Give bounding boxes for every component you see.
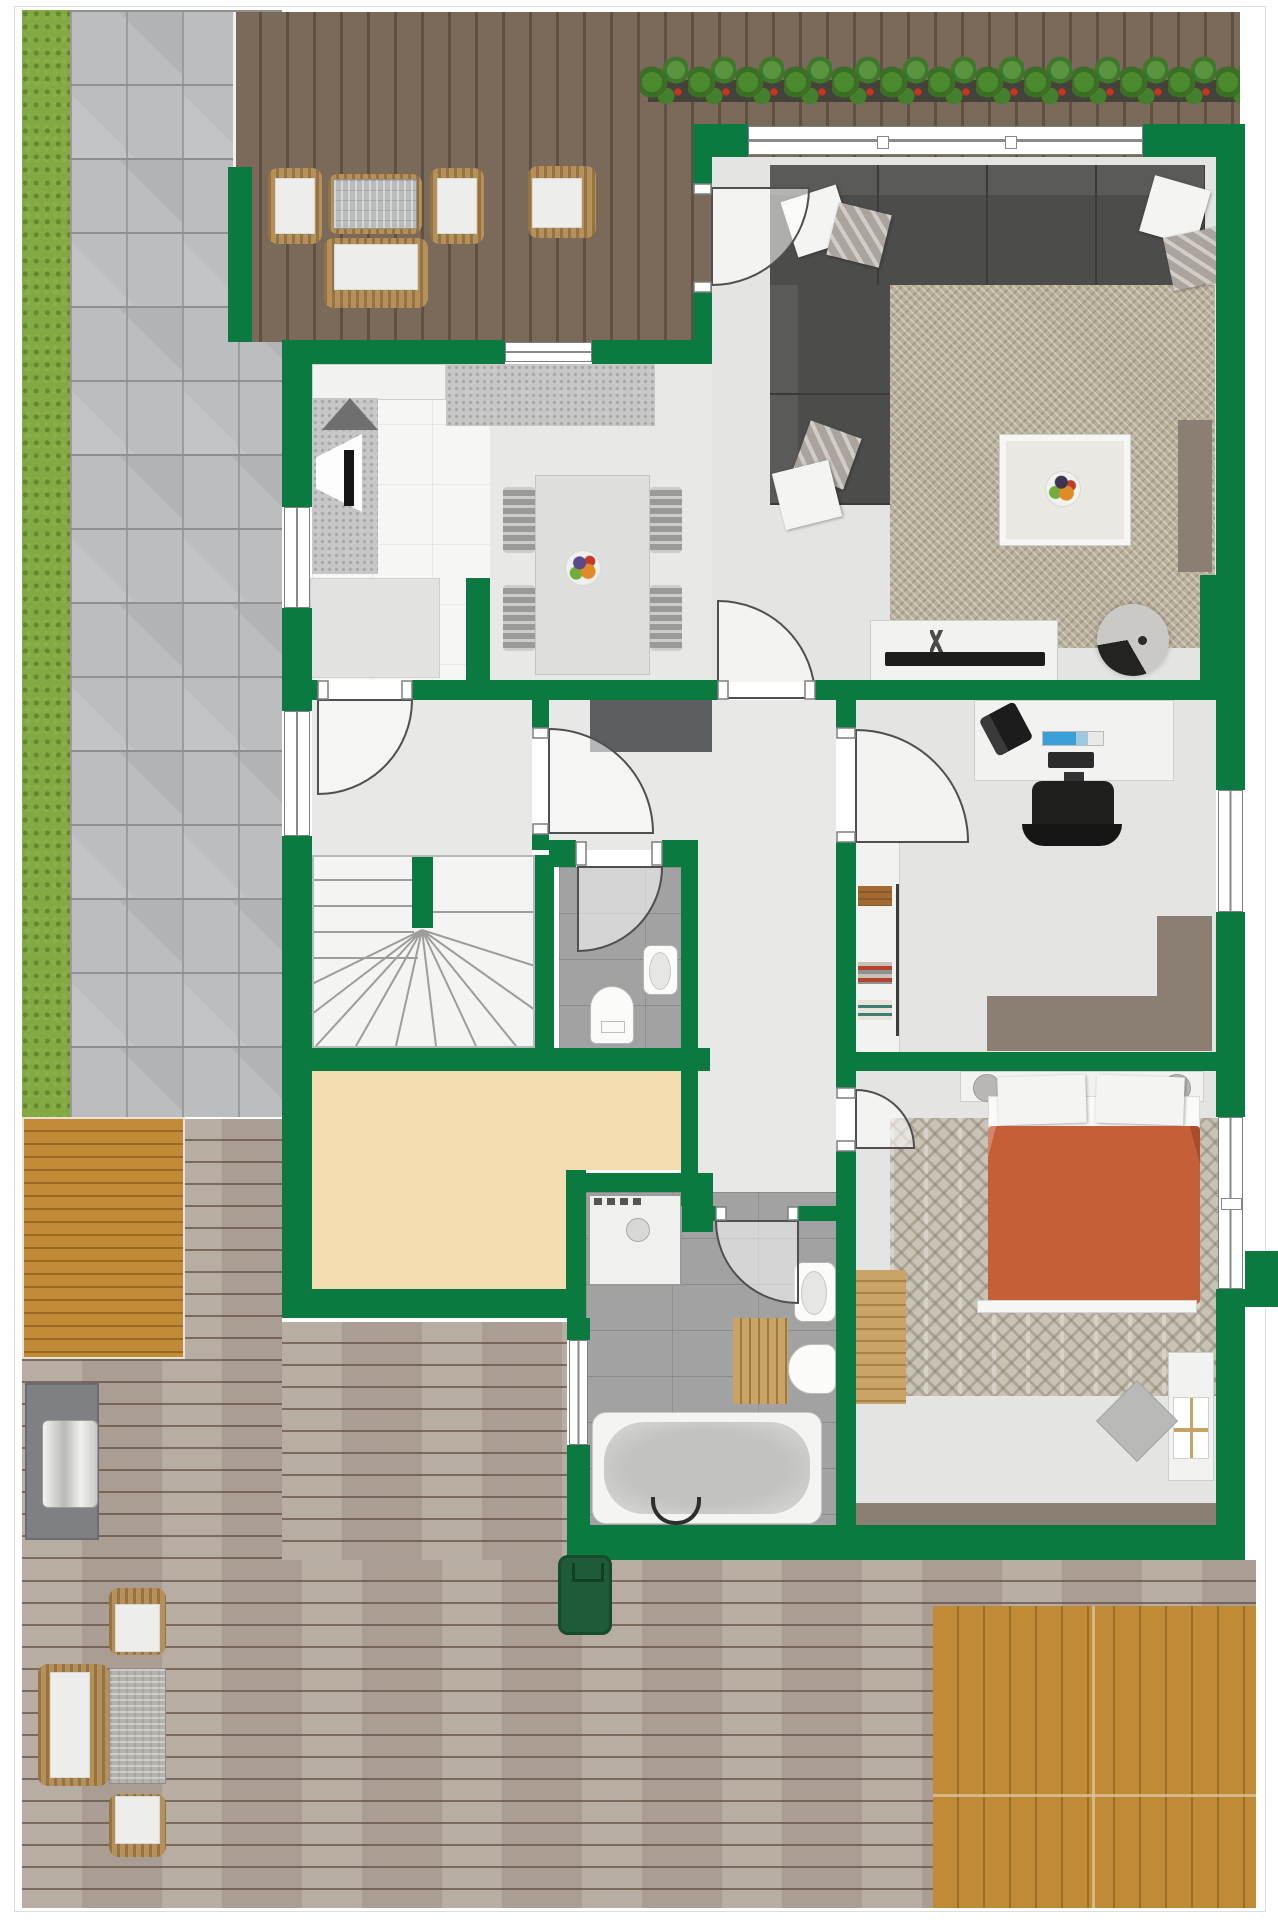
wall-storage-south xyxy=(282,1289,577,1318)
lawn-strip xyxy=(22,10,70,1119)
window-bath-west xyxy=(569,1340,588,1445)
office-chair-base xyxy=(1022,824,1122,846)
office-bookshelf xyxy=(853,842,900,1056)
outdoor-grill-station xyxy=(25,1383,99,1540)
wall-vestibule-east-b xyxy=(532,834,549,850)
wall-east-jog xyxy=(1245,1251,1278,1307)
wall-kitchen-north-a xyxy=(282,340,505,364)
garden-lounge-chair xyxy=(109,1794,166,1857)
wall-wc-east xyxy=(681,850,698,1071)
book-stack xyxy=(858,1000,892,1020)
terrace-side-chair xyxy=(528,166,596,238)
dining-chair xyxy=(503,585,535,651)
bed-pillow xyxy=(997,1074,1087,1125)
wc-toilet xyxy=(590,986,634,1044)
window-bedroom-east xyxy=(1218,1117,1243,1289)
wall-west-a xyxy=(282,340,312,507)
kitchen-island xyxy=(310,578,440,678)
storage-room-floor-a xyxy=(312,1071,683,1170)
wall-stairs-east xyxy=(535,855,554,1048)
corridor-floor-lower xyxy=(698,850,836,1206)
fruit-bowl xyxy=(1046,472,1080,506)
wall-mid-h-b xyxy=(412,680,532,700)
book-stack xyxy=(858,886,892,906)
deck-panel-divider-v xyxy=(1092,1606,1095,1908)
wall-nw-garden xyxy=(228,167,252,342)
wall-living-north-b xyxy=(1143,124,1245,157)
wall-east-c xyxy=(1216,1289,1245,1560)
bath-second-basin xyxy=(788,1344,836,1394)
deck-panel-divider-h xyxy=(933,1794,1256,1797)
window-kitchen-west xyxy=(284,507,310,608)
wall-east-pillar xyxy=(1200,575,1216,682)
shower-controls xyxy=(594,1198,644,1205)
wall-west-c xyxy=(282,836,312,1318)
wc-sink xyxy=(643,945,678,995)
storage-room-floor-b xyxy=(312,1170,566,1289)
garden-sofa xyxy=(38,1664,109,1786)
window-hall-west xyxy=(284,711,310,836)
wall-spine-a xyxy=(836,698,856,728)
wall-vestibule-east-a xyxy=(532,700,549,728)
tv-stand-legs xyxy=(930,630,1000,652)
wall-east-b xyxy=(1216,912,1245,1117)
wall-south xyxy=(573,1525,1245,1560)
kitchen-worktop-top xyxy=(446,364,655,426)
shower-head xyxy=(626,1218,650,1242)
garden-wicker-table xyxy=(109,1668,166,1784)
dining-chair xyxy=(650,585,682,651)
wall-entry-a xyxy=(693,124,712,184)
wall-office-south xyxy=(856,1052,1245,1071)
wall-entry-b xyxy=(693,292,712,346)
flower-border xyxy=(640,48,1240,118)
wall-corridor-south-a xyxy=(698,1206,716,1221)
vestibule-floor xyxy=(312,700,532,855)
window-living-north xyxy=(748,126,1143,155)
wall-bath-west-a xyxy=(567,1318,590,1340)
bed-pillow xyxy=(1095,1074,1185,1125)
wall-shower-stub xyxy=(682,1173,713,1232)
terrace-armchair xyxy=(430,168,484,244)
window-office-east xyxy=(1218,790,1243,912)
bed-footboard xyxy=(977,1300,1197,1313)
dining-chair xyxy=(650,487,682,553)
bathtub xyxy=(592,1412,822,1524)
bed-duvet xyxy=(988,1126,1200,1304)
oven-strip xyxy=(344,450,354,506)
fruit-bowl xyxy=(566,551,600,585)
golden-deck-panel-west xyxy=(24,1119,183,1357)
wooden-bath-mat xyxy=(733,1318,788,1404)
wall-east-a xyxy=(1216,157,1245,790)
green-wheelie-bin xyxy=(558,1555,612,1635)
tub-faucet xyxy=(651,1497,701,1525)
office-l-desk-vertical xyxy=(1157,916,1212,1051)
wall-kitchen-divider xyxy=(466,578,490,680)
wall-shower-north xyxy=(566,1173,682,1192)
wall-mid-h-d xyxy=(815,680,1245,700)
terrace-sofa xyxy=(324,238,428,308)
wall-mid-h-c xyxy=(532,680,718,700)
wall-living-north-a xyxy=(712,124,748,157)
terrace-armchair xyxy=(268,168,322,244)
kitchen-upper-counter xyxy=(312,364,446,400)
monitor xyxy=(1042,731,1104,746)
wall-storage-north xyxy=(282,1048,710,1071)
television xyxy=(885,652,1045,666)
bath-sink xyxy=(794,1262,836,1322)
vanity-desk xyxy=(1168,1352,1214,1481)
terrace-glass-table xyxy=(328,174,422,234)
window-kitchen-north xyxy=(505,342,592,362)
book-stack xyxy=(858,962,892,984)
keyboard xyxy=(1048,752,1094,768)
bookshelf-edge xyxy=(896,884,899,1036)
floor-plan-canvas xyxy=(0,0,1278,1920)
glass-table-top xyxy=(333,179,417,229)
grill-steel-top xyxy=(42,1420,98,1508)
bedroom-bench xyxy=(856,1270,906,1404)
dark-sideboard xyxy=(590,700,712,752)
round-fan xyxy=(1097,604,1169,676)
stair-newel xyxy=(412,855,433,928)
wall-corridor-south-b xyxy=(798,1206,836,1221)
wall-spine-c xyxy=(836,1151,856,1560)
dining-chair xyxy=(503,487,535,553)
wall-mid-h-a xyxy=(282,680,318,700)
wall-spine-b xyxy=(836,842,856,1088)
office-l-desk-horizontal xyxy=(987,996,1157,1051)
garden-lounge-chair xyxy=(109,1588,166,1655)
shower xyxy=(588,1194,682,1286)
lower-terrace-mid xyxy=(282,1322,567,1560)
living-side-bench xyxy=(1178,420,1212,572)
fan-knob xyxy=(1138,636,1147,645)
